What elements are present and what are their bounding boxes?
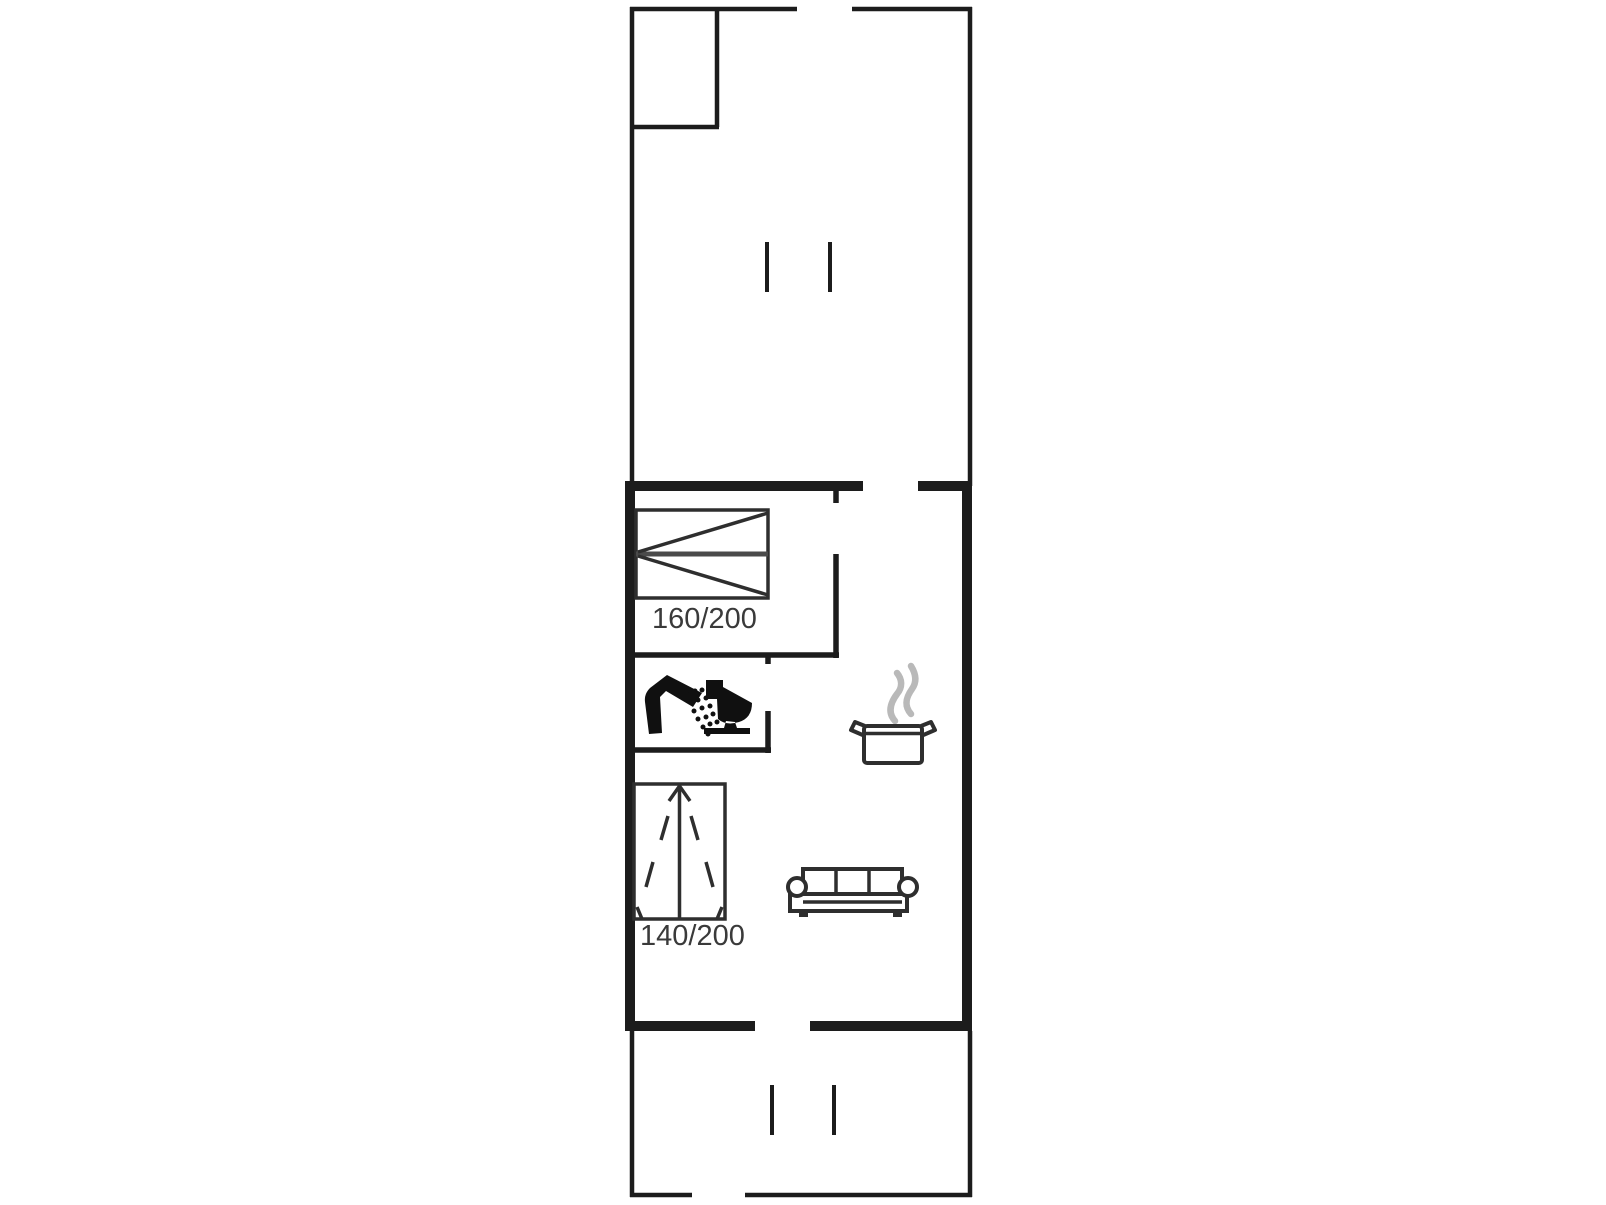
steam-icon (891, 666, 916, 721)
floorplan-canvas: 160/200 (0, 0, 1606, 1205)
kitchen (851, 666, 935, 763)
storage-room-walls (630, 7, 719, 127)
bathroom (645, 675, 752, 737)
bedroom1: 160/200 (636, 510, 768, 635)
double-bed-icon (636, 510, 768, 598)
pot-body (864, 726, 922, 763)
sofa-armrest-right (899, 878, 917, 896)
floorplan-svg: 160/200 (0, 0, 1606, 1205)
door-opening-tick-icon (767, 242, 830, 292)
upper-section (630, 7, 972, 486)
sofa-icon (788, 869, 917, 917)
living-room (788, 869, 917, 917)
upper-outer-walls (630, 7, 972, 486)
sofa-armrest-left (788, 878, 806, 896)
bed2-size-label: 140/200 (640, 920, 745, 952)
lower-section (630, 1031, 972, 1197)
single-duvet-bed-icon (634, 784, 725, 919)
bed1-size-label: 160/200 (652, 603, 757, 635)
bedroom2: 140/200 (634, 784, 745, 952)
door-opening-tick-icon (772, 1085, 834, 1135)
steam-wisp-right (906, 666, 915, 714)
steam-wisp-left (891, 673, 902, 721)
shower-head (645, 675, 702, 734)
lower-outer-walls (630, 1031, 972, 1197)
cooking-pot-icon (851, 722, 935, 763)
sofa-cushions (803, 869, 902, 894)
